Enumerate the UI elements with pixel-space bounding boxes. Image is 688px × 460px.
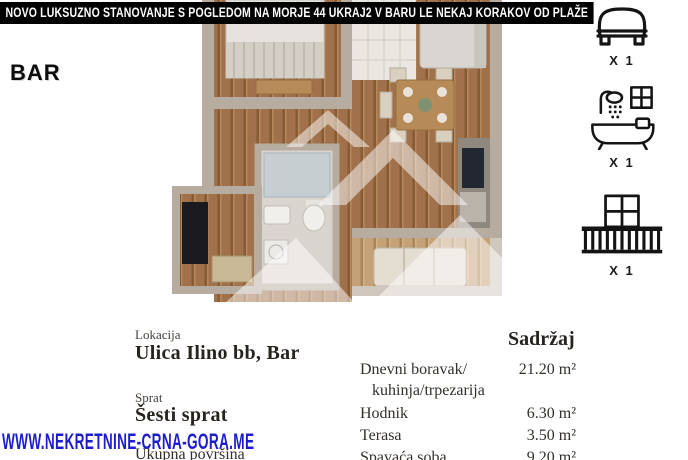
floor-plan-image	[168, 0, 510, 302]
wardrobe	[182, 202, 208, 264]
room-name-line2: kuhinja/trpezarija	[372, 382, 485, 400]
balcony-icon	[578, 194, 666, 258]
closet-room	[176, 190, 258, 290]
room-area: 21.20 m²	[360, 361, 576, 379]
location-label: Lokacija	[135, 327, 180, 343]
room-area: 6.30 m²	[360, 405, 576, 423]
agency-watermark: WWW.NEKRETNINE-CRNA-GORA.ME	[2, 429, 409, 455]
kitchen	[458, 138, 490, 228]
bedroom-count: X 1	[556, 53, 688, 68]
listing-flyer: NOVO LUKSUZNO STANOVANJE S POGLEDOM NA M…	[0, 0, 688, 460]
listing-title: NOVO LUKSUZNO STANOVANJE S POGLEDOM NA M…	[0, 2, 594, 24]
bathtub-icon	[582, 84, 662, 150]
agency-watermark-text: WWW.NEKRETNINE-CRNA-GORA.ME	[2, 429, 254, 455]
contents-header: Sadržaj	[508, 328, 575, 351]
feature-balconies: X 1	[556, 194, 688, 278]
listing-title-bar: NOVO LUKSUZNO STANOVANJE S POGLEDOM NA M…	[0, 2, 688, 24]
balcony-count: X 1	[556, 263, 688, 278]
floor-value: Šesti sprat	[135, 404, 228, 427]
bathroom-count: X 1	[556, 155, 688, 170]
region-label: BAR	[10, 60, 61, 86]
feature-list: X 1	[556, 0, 688, 310]
location-value: Ulica Ilino bb, Bar	[135, 342, 300, 365]
feature-bathrooms: X 1	[556, 84, 688, 170]
floor-plan-svg	[168, 0, 510, 302]
